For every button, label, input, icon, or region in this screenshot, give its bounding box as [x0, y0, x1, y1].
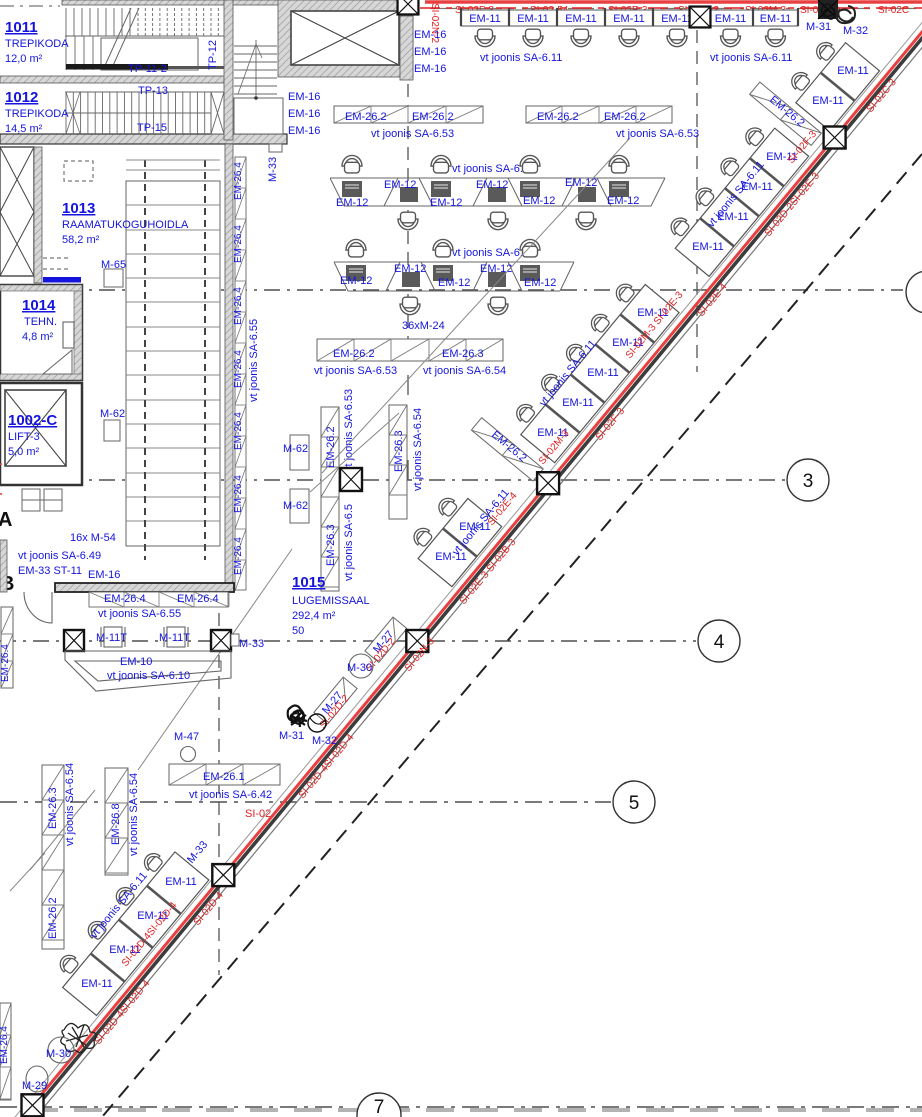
svg-text:M-62: M-62 — [283, 443, 308, 455]
svg-text:EM-26.2: EM-26.2 — [47, 897, 59, 939]
svg-text:vt joonis SA-6.53: vt joonis SA-6.53 — [616, 128, 699, 140]
svg-text:vt joonis SA-6.54: vt joonis SA-6.54 — [412, 408, 424, 491]
svg-text:5,0 m²: 5,0 m² — [8, 446, 40, 458]
svg-text:292,4 m²: 292,4 m² — [292, 610, 336, 622]
svg-text:LUGEMISSAAL: LUGEMISSAAL — [292, 595, 370, 607]
svg-text:EM-12: EM-12 — [384, 179, 416, 191]
svg-text:vt joonis SA-6.53: vt joonis SA-6.53 — [314, 365, 397, 377]
svg-text:EM-26.4: EM-26.4 — [104, 593, 146, 605]
svg-text:M-30: M-30 — [347, 662, 372, 674]
svg-text:TREPIKODA: TREPIKODA — [5, 108, 69, 120]
svg-text:EM-11: EM-11 — [812, 95, 844, 107]
svg-text:14,5 m²: 14,5 m² — [5, 123, 43, 135]
svg-text:vt joonis SA-6.55: vt joonis SA-6.55 — [98, 608, 181, 620]
svg-text:1002-C: 1002-C — [8, 412, 57, 429]
svg-text:EM-26.2: EM-26.2 — [325, 426, 337, 468]
svg-text:EM-26.4: EM-26.4 — [233, 412, 244, 450]
svg-text:EM-16: EM-16 — [288, 108, 320, 120]
svg-text:EM-11: EM-11 — [565, 13, 597, 25]
svg-text:1011: 1011 — [5, 19, 38, 36]
svg-text:vt joonis SA-6.53: vt joonis SA-6.53 — [343, 389, 355, 472]
svg-text:EM-11: EM-11 — [715, 13, 747, 25]
svg-text:M-33: M-33 — [267, 157, 279, 182]
svg-text:EM-26.8: EM-26.8 — [110, 803, 122, 845]
svg-text:TP-12: TP-12 — [207, 40, 219, 70]
svg-text:vt joonis SA-6.5: vt joonis SA-6.5 — [343, 504, 355, 581]
svg-text:EM-11: EM-11 — [517, 13, 549, 25]
svg-text:EM-26.2: EM-26.2 — [604, 111, 646, 123]
svg-text:EM-26.2: EM-26.2 — [537, 111, 579, 123]
svg-text:M-11T: M-11T — [96, 632, 127, 644]
svg-text:EM-12: EM-12 — [340, 275, 372, 287]
svg-text:EM-16: EM-16 — [288, 91, 320, 103]
svg-text:M-11T: M-11T — [159, 632, 190, 644]
svg-text:EM-11: EM-11 — [587, 367, 619, 379]
svg-text:EM-12: EM-12 — [524, 277, 556, 289]
svg-text:EM-26.4: EM-26.4 — [233, 287, 244, 325]
svg-text:3: 3 — [803, 471, 814, 492]
svg-text:LIFT-3: LIFT-3 — [8, 431, 40, 443]
svg-text:16x M-54: 16x M-54 — [70, 532, 116, 544]
svg-text:7: 7 — [374, 1097, 385, 1117]
svg-text:vt joonis SA-6.49: vt joonis SA-6.49 — [18, 550, 101, 562]
svg-text:A: A — [0, 509, 12, 531]
svg-text:EM-26.4: EM-26.4 — [0, 1026, 10, 1064]
svg-text:EM-11: EM-11 — [760, 13, 792, 25]
svg-text:EM-26.4: EM-26.4 — [177, 593, 219, 605]
svg-text:EM-26.1: EM-26.1 — [203, 771, 245, 783]
svg-text:M-47: M-47 — [174, 731, 199, 743]
svg-text:SI-02: SI-02 — [245, 808, 271, 820]
svg-text:EM-12: EM-12 — [607, 195, 639, 207]
svg-text:M-32: M-32 — [843, 25, 868, 37]
svg-text:vt joonis SA-6.11: vt joonis SA-6.11 — [480, 52, 562, 64]
svg-text:EM-16: EM-16 — [414, 29, 446, 41]
svg-text:EM-26.3: EM-26.3 — [47, 787, 59, 829]
svg-text:vt joonis SA-6.54: vt joonis SA-6.54 — [423, 365, 506, 377]
svg-text:vt joonis SA-6.10: vt joonis SA-6.10 — [107, 670, 190, 682]
svg-text:M-29: M-29 — [22, 1080, 47, 1092]
svg-text:EM-12: EM-12 — [476, 179, 508, 191]
svg-text:vt joonis SA-6.54: vt joonis SA-6.54 — [64, 763, 76, 846]
svg-text:EM-12: EM-12 — [336, 197, 368, 209]
svg-text:TP-13: TP-13 — [138, 85, 168, 97]
svg-text:12,0 m²: 12,0 m² — [5, 53, 43, 65]
svg-text:vt joonis SA-6.11: vt joonis SA-6.11 — [710, 52, 792, 64]
svg-text:EM-11: EM-11 — [661, 13, 693, 25]
svg-text:4,8 m²: 4,8 m² — [22, 331, 54, 343]
svg-text:EM-26.2: EM-26.2 — [333, 348, 375, 360]
svg-text:EM-26.4: EM-26.4 — [233, 475, 244, 513]
svg-text:EM-26.4: EM-26.4 — [233, 350, 244, 388]
svg-text:EM-26.3: EM-26.3 — [325, 524, 337, 566]
svg-text:36xM-24: 36xM-24 — [402, 320, 445, 332]
svg-text:TP-15: TP-15 — [137, 122, 167, 134]
svg-text:1013: 1013 — [62, 200, 95, 217]
svg-text:EM-11: EM-11 — [692, 241, 724, 253]
svg-text:M-31: M-31 — [806, 21, 831, 33]
svg-text:EM-26.3: EM-26.3 — [442, 348, 484, 360]
svg-text:EM-11: EM-11 — [562, 397, 594, 409]
svg-text:EM-12: EM-12 — [480, 263, 512, 275]
svg-text:TP-11-2: TP-11-2 — [128, 63, 167, 75]
svg-text:EM-12: EM-12 — [430, 197, 462, 209]
svg-text:SI-02C: SI-02C — [878, 5, 909, 16]
svg-text:vt joonis SA-6.55: vt joonis SA-6.55 — [248, 319, 260, 402]
svg-text:M-32: M-32 — [312, 735, 337, 747]
svg-text:EM-26.4: EM-26.4 — [0, 644, 11, 682]
svg-text:M-62: M-62 — [100, 408, 125, 420]
svg-text:1012: 1012 — [5, 89, 38, 106]
svg-text:5: 5 — [629, 793, 640, 814]
svg-text:M-30: M-30 — [46, 1048, 71, 1060]
svg-text:RAAMATUKOGUHOIDLA: RAAMATUKOGUHOIDLA — [62, 219, 189, 231]
svg-text:EM-12: EM-12 — [394, 263, 426, 275]
svg-text:4: 4 — [714, 632, 725, 653]
svg-text:EM-11: EM-11 — [165, 876, 197, 888]
svg-text:1015: 1015 — [292, 574, 325, 591]
svg-text:EM-26.2: EM-26.2 — [345, 111, 387, 123]
svg-text:EM-26.4: EM-26.4 — [233, 537, 244, 575]
svg-text:TREPIKODA: TREPIKODA — [5, 38, 69, 50]
svg-text:vt joonis SA-6.42: vt joonis SA-6.42 — [189, 789, 272, 801]
svg-text:M-33: M-33 — [239, 638, 264, 650]
svg-text:EM-26.2: EM-26.2 — [412, 111, 454, 123]
svg-text:58,2 m²: 58,2 m² — [62, 234, 100, 246]
svg-text:EM-10: EM-10 — [120, 656, 152, 668]
svg-text:EM-16: EM-16 — [288, 125, 320, 137]
svg-text:EM-11: EM-11 — [613, 13, 645, 25]
svg-text:1014: 1014 — [22, 297, 56, 314]
svg-text:50: 50 — [292, 625, 304, 637]
svg-text:EM-26.4: EM-26.4 — [233, 225, 244, 263]
svg-text:EM-11: EM-11 — [81, 978, 113, 990]
svg-text:EM-12: EM-12 — [438, 277, 470, 289]
svg-text:EM-11: EM-11 — [469, 13, 501, 25]
svg-text:EM-16: EM-16 — [88, 569, 120, 581]
svg-text:EM-33 ST-11: EM-33 ST-11 — [18, 565, 82, 577]
svg-text:EM-26.3: EM-26.3 — [393, 430, 405, 472]
svg-text:M-31: M-31 — [279, 730, 304, 742]
svg-text:TEHN.: TEHN. — [24, 316, 57, 328]
svg-text:EM-11: EM-11 — [837, 65, 869, 77]
svg-text:EM-16: EM-16 — [414, 63, 446, 75]
svg-text:vt joonis SA-6.53: vt joonis SA-6.53 — [371, 128, 454, 140]
svg-text:EM-12: EM-12 — [523, 195, 555, 207]
svg-text:M-62: M-62 — [283, 500, 308, 512]
svg-text:vt joonis SA-6.54: vt joonis SA-6.54 — [128, 773, 140, 856]
svg-text:EM-16: EM-16 — [414, 46, 446, 58]
svg-text:EM-26.4: EM-26.4 — [233, 162, 244, 200]
